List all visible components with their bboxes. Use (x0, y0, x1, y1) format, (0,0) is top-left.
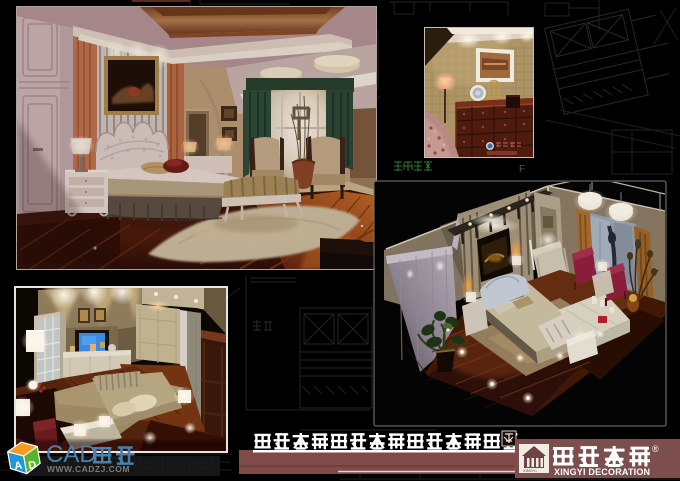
svg-text:WWW.CADZJ.COM: WWW.CADZJ.COM (47, 464, 130, 474)
svg-text:F: F (519, 164, 525, 175)
svg-text:®: ® (652, 444, 659, 454)
svg-text:XINGYI: XINGYI (523, 468, 537, 473)
svg-text:XINGYI DECORATION: XINGYI DECORATION (554, 467, 650, 477)
